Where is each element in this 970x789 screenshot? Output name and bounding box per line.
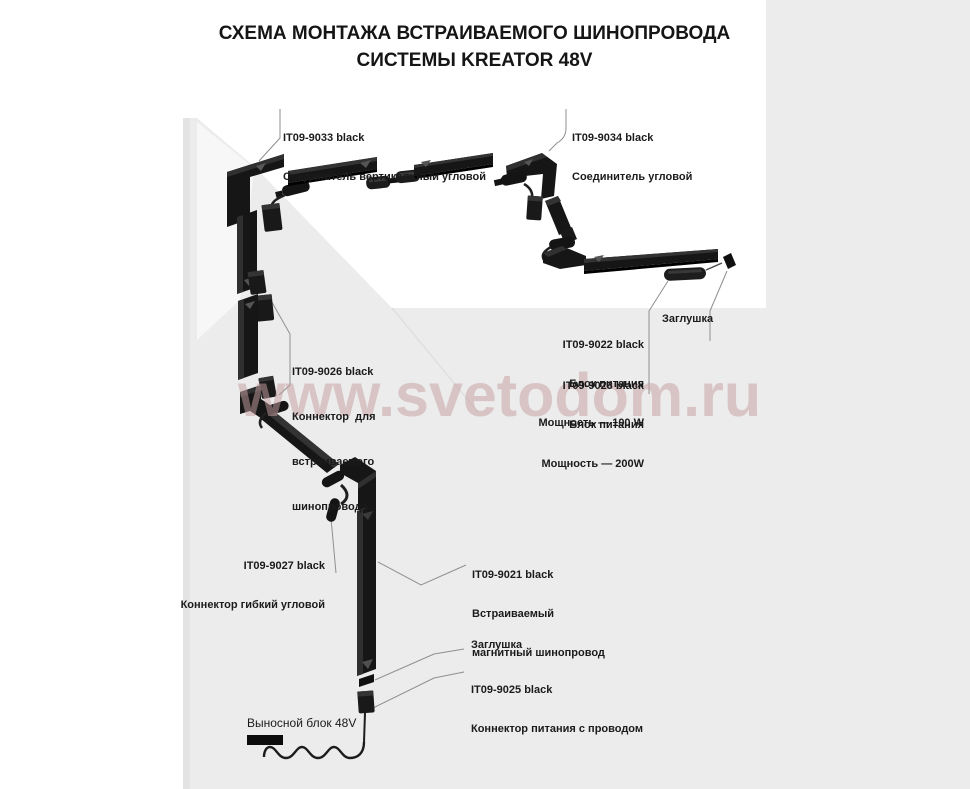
power-supply-unit [664, 267, 707, 281]
label-9027: IT09-9027 black Коннектор гибкий угловой [181, 534, 325, 638]
label-9026: IT09-9026 black Коннектор для встраиваем… [292, 335, 376, 545]
corner-connector-right-lower [543, 246, 586, 269]
label-9023-code: IT09-9023 black [542, 380, 645, 393]
label-9033-code: IT09-9033 black [283, 132, 486, 145]
page: www.svetodom.ru СХЕМА МОНТАЖА ВСТРАИВАЕМ… [0, 0, 970, 789]
wall-left-edge [183, 118, 190, 789]
label-9021-code: IT09-9021 black [472, 569, 605, 582]
label-9033: IT09-9033 black Соединитель вертикальный… [283, 106, 486, 210]
title-line-2: СИСТЕМЫ KREATOR 48V [183, 47, 766, 74]
label-9026-line3: шинопровода [292, 500, 376, 515]
wire-connector-top-right [494, 170, 543, 220]
external-driver-block [247, 735, 283, 745]
label-external-unit: Выносной блок 48V [247, 717, 356, 730]
label-9025-desc: Коннектор питания с проводом [471, 723, 643, 736]
label-9023-line2: Мощность — 200W [542, 458, 645, 471]
label-9033-desc: Соединитель вертикальный угловой [283, 171, 486, 184]
label-9025-code: IT09-9025 black [471, 684, 643, 697]
label-9026-line2: встраиваемого [292, 455, 376, 470]
label-9027-code: IT09-9027 black [181, 560, 325, 573]
track-segment-left-vertical-2 [238, 294, 258, 380]
label-9026-line1: Коннектор для [292, 410, 376, 425]
leader-9034 [549, 109, 566, 151]
label-9026-code: IT09-9026 black [292, 365, 376, 380]
label-9021-line1: Встраиваемый [472, 608, 605, 621]
page-title: СХЕМА МОНТАЖА ВСТРАИВАЕМОГО ШИНОПРОВОДА … [183, 20, 766, 74]
label-9027-desc: Коннектор гибкий угловой [181, 599, 325, 612]
label-9034-code: IT09-9034 black [572, 132, 692, 145]
label-9023-line1: Блок питания [542, 419, 645, 432]
label-end-cap-bottom: Заглушка [471, 639, 522, 652]
label-9034: IT09-9034 black Соединитель угловой [572, 106, 692, 210]
label-9023: IT09-9023 black Блок питания Мощность — … [542, 354, 645, 497]
title-line-1: СХЕМА МОНТАЖА ВСТРАИВАЕМОГО ШИНОПРОВОДА [183, 20, 766, 47]
leader-9033 [259, 109, 280, 161]
label-end-cap-top: Заглушка [662, 313, 713, 326]
label-9025: IT09-9025 black Коннектор питания с пров… [471, 658, 643, 762]
label-9022-code: IT09-9022 black [538, 339, 644, 352]
label-9034-desc: Соединитель угловой [572, 171, 692, 184]
